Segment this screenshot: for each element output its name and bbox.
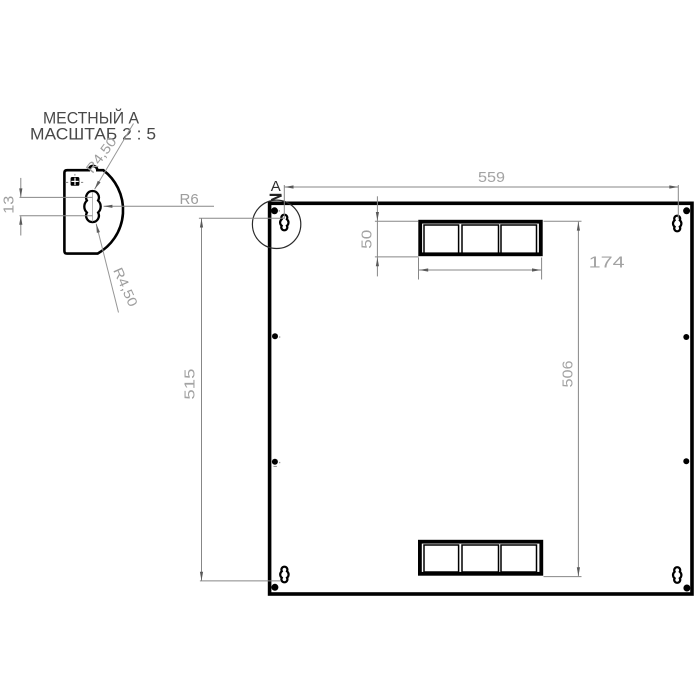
svg-text:A: A: [271, 178, 281, 195]
svg-text:R6: R6: [180, 191, 199, 208]
svg-text:559: 559: [478, 169, 505, 186]
svg-text:13: 13: [0, 196, 17, 214]
svg-text:50: 50: [359, 230, 376, 249]
svg-text:МАСШТАБ 2 : 5: МАСШТАБ 2 : 5: [30, 126, 156, 144]
svg-text:506: 506: [560, 361, 577, 388]
svg-text:174: 174: [589, 255, 626, 272]
svg-text:515: 515: [181, 369, 198, 400]
